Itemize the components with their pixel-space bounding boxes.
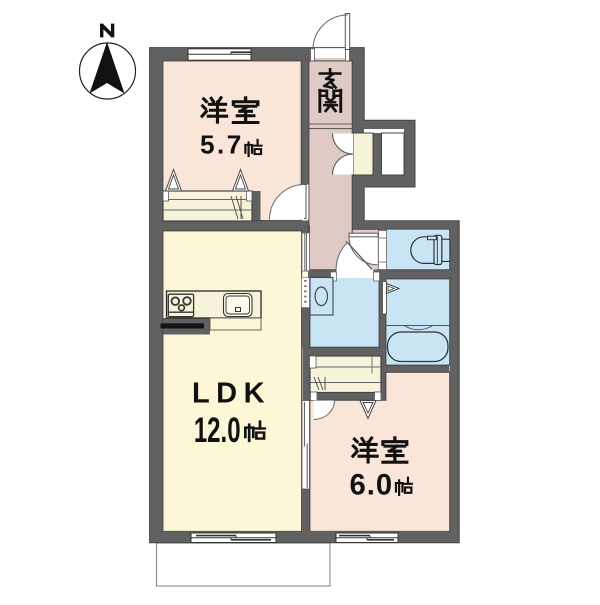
svg-text:LDK: LDK xyxy=(192,377,271,409)
svg-text:6.0: 6.0 xyxy=(350,469,394,501)
svg-text:5.7: 5.7 xyxy=(200,130,244,160)
svg-text:12.0: 12.0 xyxy=(194,411,241,449)
